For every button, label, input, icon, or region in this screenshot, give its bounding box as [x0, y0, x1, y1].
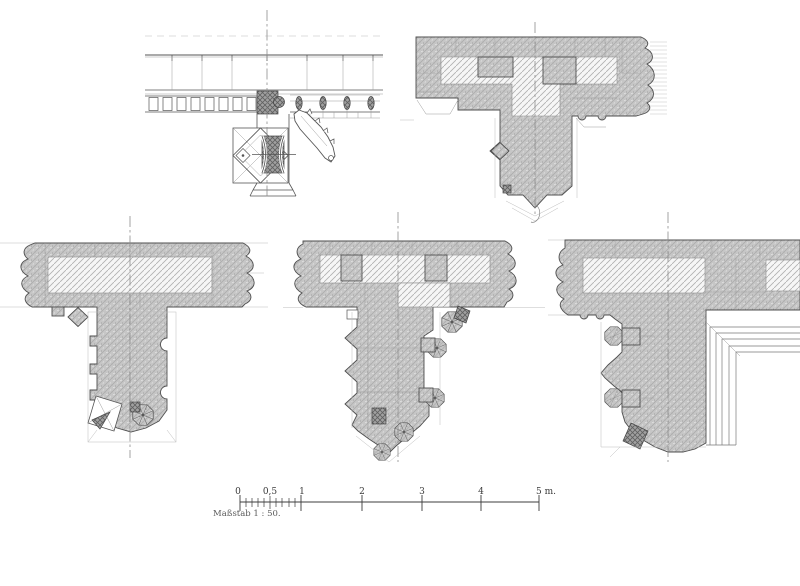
dentil-row — [149, 98, 256, 111]
scale-label-0: 0 — [235, 487, 241, 497]
scale-major-ticks — [240, 495, 539, 511]
ashlar-band — [583, 258, 705, 293]
pier-plan-left — [0, 216, 268, 458]
pier-plan-center — [283, 205, 545, 462]
plate-canvas: 0 0,5 1 2 3 4 5 m. Maßstab 1 : 50. — [0, 0, 800, 586]
scale-caption: Maßstab 1 : 50. — [213, 509, 281, 519]
gargoyle-bracket — [294, 109, 335, 162]
scale-label-5m: 5 m. — [536, 487, 556, 497]
pinnacle-plan — [233, 128, 296, 196]
diamond-spur — [68, 308, 88, 327]
parapet-pinnacle-plan — [145, 10, 383, 197]
pier-plan-top-right — [400, 22, 667, 221]
scale-label-05: 0,5 — [263, 487, 278, 497]
shaft-octagon — [605, 389, 623, 407]
scale-label-3: 3 — [419, 487, 425, 497]
scale-label-2: 2 — [359, 487, 365, 497]
dentil-course-lines — [145, 96, 262, 112]
scale-bar: 0 0,5 1 2 3 4 5 m. Maßstab 1 : 50. — [213, 487, 556, 519]
scale-label-1: 1 — [299, 487, 305, 497]
corner-pier-plan — [548, 212, 800, 462]
pinnacle-rosette — [395, 423, 413, 441]
shaft-octagon — [605, 327, 623, 345]
scale-label-4: 4 — [478, 487, 484, 497]
engraved-plate: 0 0,5 1 2 3 4 5 m. Maßstab 1 : 50. — [0, 0, 800, 586]
corner-molding — [706, 322, 800, 445]
